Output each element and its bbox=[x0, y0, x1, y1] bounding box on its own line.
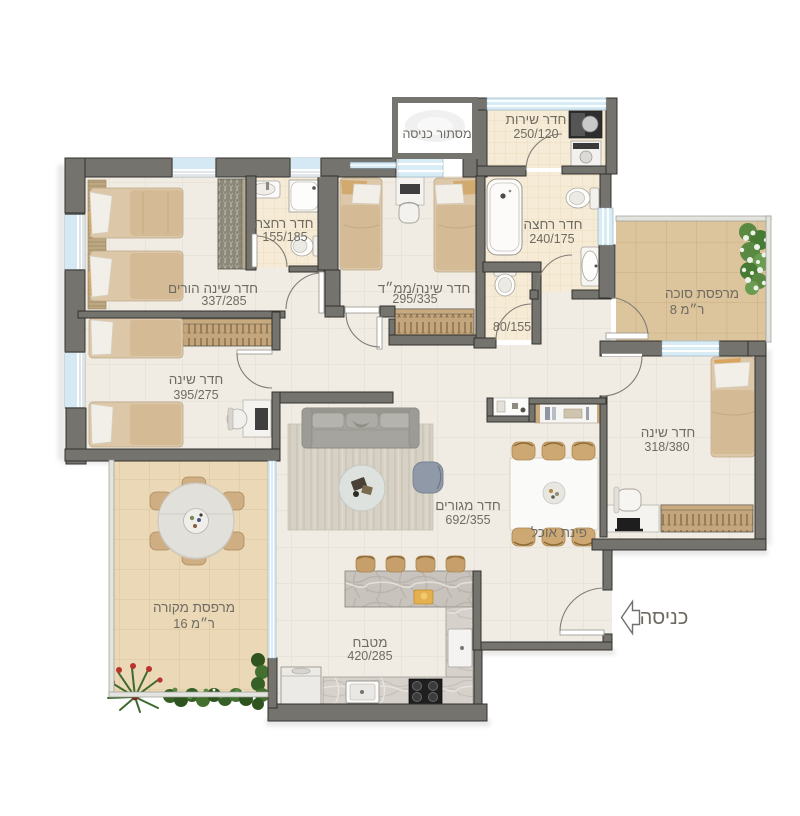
svg-text:420/285: 420/285 bbox=[347, 649, 392, 663]
svg-text:חדר רחצה: חדר רחצה bbox=[524, 217, 583, 232]
svg-text:מרפסת סוכה: מרפסת סוכה bbox=[665, 286, 739, 301]
svg-text:מטבח: מטבח bbox=[352, 635, 387, 650]
svg-text:חדר מגורים: חדר מגורים bbox=[435, 498, 500, 513]
svg-text:240/175: 240/175 bbox=[529, 232, 574, 246]
svg-text:395/275: 395/275 bbox=[173, 388, 218, 402]
svg-text:חדר שירות: חדר שירות bbox=[506, 112, 567, 127]
svg-text:מסתור כניסה: מסתור כניסה bbox=[402, 127, 471, 141]
svg-text:16 מ״ר: 16 מ״ר bbox=[173, 616, 215, 631]
svg-text:80/155: 80/155 bbox=[493, 320, 531, 334]
svg-text:692/355: 692/355 bbox=[445, 513, 490, 527]
svg-text:318/380: 318/380 bbox=[644, 440, 689, 454]
svg-text:פינת אוכל: פינת אוכל bbox=[531, 525, 587, 540]
svg-text:155/185: 155/185 bbox=[262, 230, 307, 244]
svg-text:חדר רחצה: חדר רחצה bbox=[255, 216, 314, 231]
svg-text:חדר שינה: חדר שינה bbox=[169, 372, 224, 387]
svg-text:8 מ״ר: 8 מ״ר bbox=[670, 302, 705, 317]
svg-text:חדר שינה: חדר שינה bbox=[641, 425, 696, 440]
svg-text:מרפסת מקורה: מרפסת מקורה bbox=[153, 600, 235, 615]
svg-text:כניסה: כניסה bbox=[640, 607, 689, 629]
svg-text:295/335: 295/335 bbox=[392, 292, 437, 306]
svg-text:250/120: 250/120 bbox=[513, 127, 558, 141]
svg-text:337/285: 337/285 bbox=[201, 294, 246, 308]
